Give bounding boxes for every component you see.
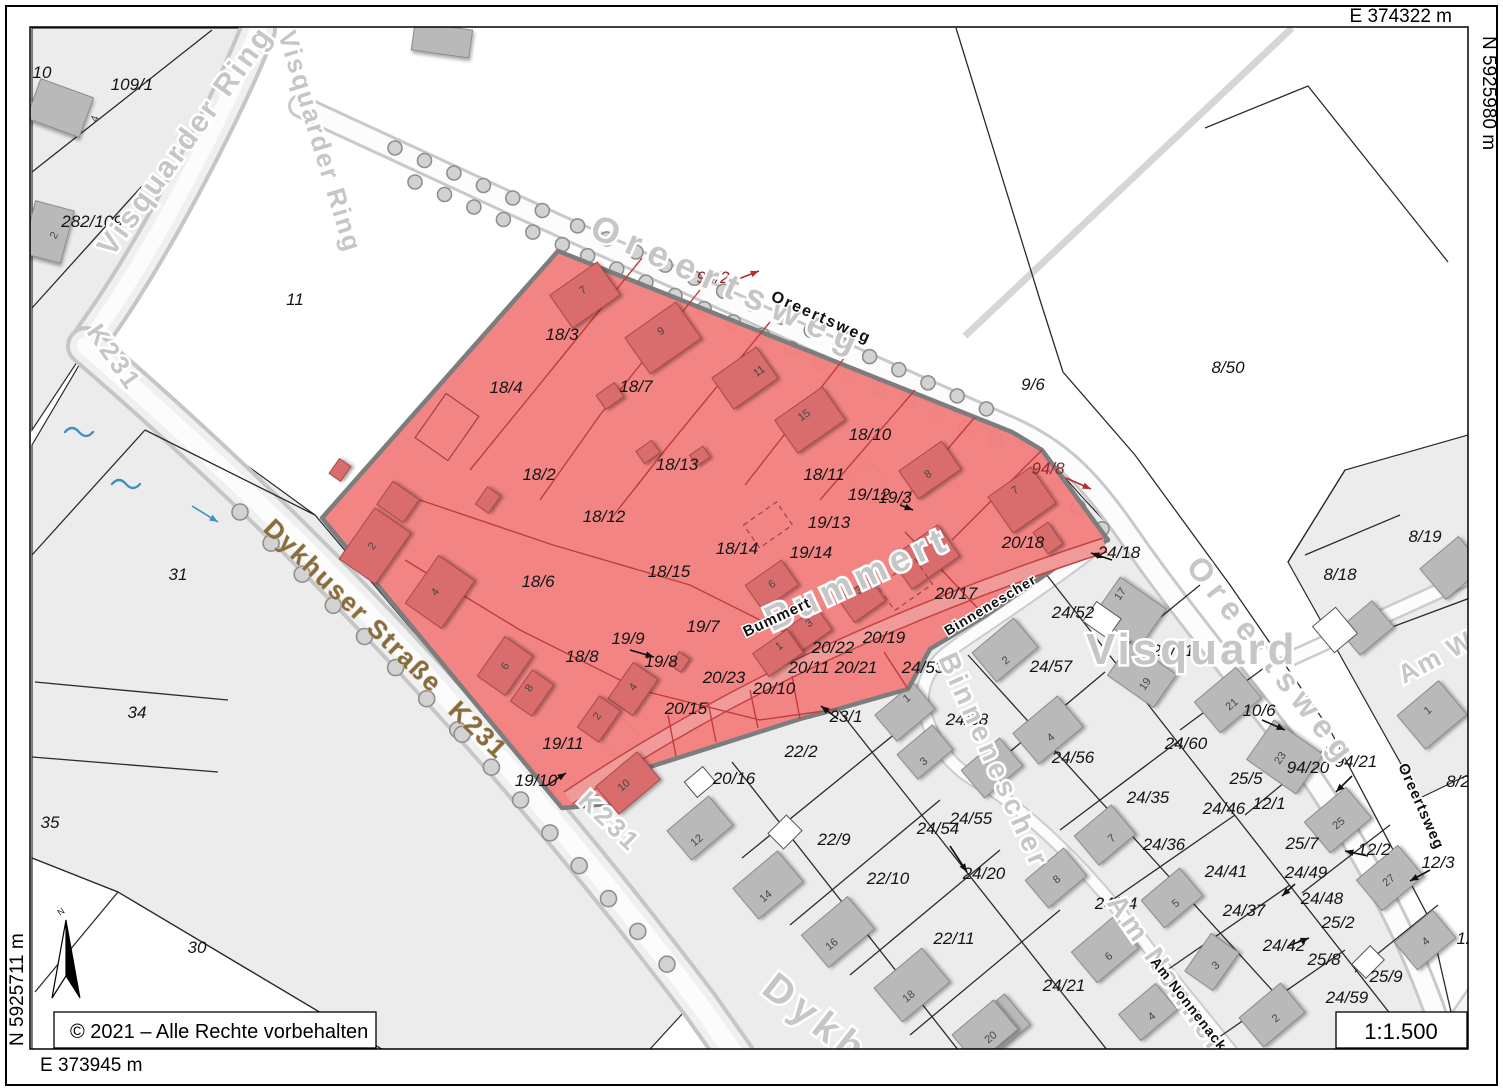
tree-icon xyxy=(921,376,935,390)
tree-icon xyxy=(476,179,490,193)
tree-icon xyxy=(979,402,993,416)
parcel-label: 24/35 xyxy=(1126,788,1170,807)
parcel-label: 35 xyxy=(41,813,60,832)
tree-icon xyxy=(542,825,558,841)
parcel-label: 18/6 xyxy=(521,572,555,591)
parcel-label: 20/18 xyxy=(1001,533,1045,552)
parcel-label: 24/20 xyxy=(962,864,1006,883)
parcel-label: 25/5 xyxy=(1228,769,1263,788)
tree-icon xyxy=(418,154,432,168)
parcel-label: 24/56 xyxy=(1051,748,1095,767)
parcel-label: 19/11 xyxy=(542,734,583,753)
parcel-label: 24/52 xyxy=(1051,603,1095,622)
parcel-label: 19/8 xyxy=(644,652,678,671)
parcel-label: 94/8 xyxy=(1031,459,1065,478)
tree-icon xyxy=(950,389,964,403)
parcel-label: 20/21 xyxy=(834,658,878,677)
parcel-label: 19/13 xyxy=(808,513,851,532)
coordinate-label-left: N 5925711 m xyxy=(7,933,28,1046)
tree-icon xyxy=(513,792,529,808)
tree-icon xyxy=(892,363,906,377)
parcel-label: 19/3 xyxy=(878,488,912,507)
tree-icon xyxy=(571,858,587,874)
parcel-label: 20/16 xyxy=(712,769,756,788)
tree-icon xyxy=(232,504,248,520)
parcel-label: 24/59 xyxy=(1325,988,1369,1007)
parcel-label: 12 xyxy=(1457,929,1476,948)
parcel-label: 24/55 xyxy=(949,809,993,828)
parcel-label: 24/37 xyxy=(1222,901,1266,920)
parcel-label: 18/8 xyxy=(565,647,599,666)
parcel-label: 22/10 xyxy=(866,869,910,888)
parcel-label: 25/9 xyxy=(1368,967,1403,986)
parcel-label: 24/21 xyxy=(1042,976,1086,995)
parcel-label: 20/17 xyxy=(934,584,978,603)
tree-icon xyxy=(447,166,461,180)
tree-icon xyxy=(438,188,452,202)
parcel-label: 18/4 xyxy=(489,378,522,397)
parcel-label: 19/14 xyxy=(790,543,833,562)
coordinate-label-bottom: E 373945 m xyxy=(40,1055,142,1076)
scale-box: 1:1.500 xyxy=(1336,1012,1467,1048)
parcel-label: 24/41 xyxy=(1204,862,1248,881)
tree-icon xyxy=(659,956,675,972)
parcel-label: 22/2 xyxy=(783,742,818,761)
parcel-label: 34 xyxy=(128,703,147,722)
parcel-label: 9/6 xyxy=(1021,375,1045,394)
parcel-label: 24/48 xyxy=(1300,889,1344,908)
parcel-label: 12/3 xyxy=(1421,853,1455,872)
parcel-label: 25/2 xyxy=(1320,913,1355,932)
parcel-label: 18/11 xyxy=(803,465,844,484)
parcel-label: 18/13 xyxy=(656,455,699,474)
parcel-label: 10/6 xyxy=(1242,701,1276,720)
tree-icon xyxy=(630,923,646,939)
parcel-label: 12/1 xyxy=(1252,794,1285,813)
parcel-label: 25/8 xyxy=(1306,950,1341,969)
place-label: Visquard xyxy=(1086,625,1297,674)
parcel-label: 20/23 xyxy=(702,668,746,687)
parcel-label: 24/60 xyxy=(1164,734,1208,753)
coordinate-label-right: N 5925980 m xyxy=(1478,36,1499,150)
copyright-text: © 2021 – Alle Rechte vorbehalten xyxy=(70,1021,368,1043)
tree-icon xyxy=(506,191,520,205)
parcel-label: 8/2 xyxy=(1446,772,1470,791)
parcel-label: 11 xyxy=(286,290,304,309)
parcel-label: 24/49 xyxy=(1284,863,1328,882)
tree-icon xyxy=(526,225,540,239)
parcel-label: 18/10 xyxy=(849,425,892,444)
scale-text: 1:1.500 xyxy=(1364,1019,1437,1044)
parcel-label: 20/15 xyxy=(664,699,708,718)
parcel-label: 12/2 xyxy=(1357,840,1391,859)
parcel-label: 31 xyxy=(169,565,188,584)
map-canvas: 10109/1282/10911313435308/509/68/198/188… xyxy=(0,0,1503,1091)
parcel-label: 24/57 xyxy=(1029,657,1073,676)
parcel-label: 20/11 xyxy=(787,658,829,677)
parcel-label: 8/50 xyxy=(1211,358,1245,377)
parcel-label: 20/10 xyxy=(752,679,796,698)
parcel-label: 22/11 xyxy=(932,929,974,948)
tree-icon xyxy=(863,350,877,364)
parcel-label: 18/2 xyxy=(522,465,556,484)
cadastral-map-viewport: 10109/1282/10911313435308/509/68/198/188… xyxy=(0,0,1503,1091)
tree-icon xyxy=(496,213,510,227)
tree-icon xyxy=(408,175,422,189)
copyright-box: © 2021 – Alle Rechte vorbehalten xyxy=(54,1012,376,1048)
tree-icon xyxy=(467,200,481,214)
parcel-label: 94/20 xyxy=(1287,758,1330,777)
tree-icon xyxy=(535,204,549,218)
parcel-label: 19/7 xyxy=(686,617,720,636)
parcel-label: 109/1 xyxy=(111,75,154,94)
parcel-label: 19/9 xyxy=(611,629,645,648)
parcel-label: 8/19 xyxy=(1408,527,1442,546)
coordinate-label-top-right: E 374322 m xyxy=(1350,6,1452,27)
parcel-label: 18/3 xyxy=(545,325,579,344)
parcel-label: 24/46 xyxy=(1202,799,1246,818)
parcel-label: 19/10 xyxy=(515,771,558,790)
parcel-label: 18/12 xyxy=(583,507,626,526)
parcel-label: 18/14 xyxy=(716,539,759,558)
parcel-label: 18/7 xyxy=(619,377,653,396)
parcel-label: 30 xyxy=(188,938,207,957)
parcel-label: 20/22 xyxy=(811,638,855,657)
parcel-label: 24/36 xyxy=(1142,835,1186,854)
parcel-label: 23/1 xyxy=(828,707,862,726)
tree-icon xyxy=(388,141,402,155)
parcel-label: 24/42 xyxy=(1262,936,1306,955)
parcel-label: 8/18 xyxy=(1323,565,1357,584)
parcel-label: 20/19 xyxy=(862,628,906,647)
parcel-label: 10 xyxy=(33,63,52,82)
tree-icon xyxy=(571,219,585,233)
parcel-label: 24/18 xyxy=(1097,543,1141,562)
parcel-label: 22/9 xyxy=(816,830,851,849)
parcel-label: 25/7 xyxy=(1284,834,1319,853)
parcel-label: 18/15 xyxy=(648,562,691,581)
tree-icon xyxy=(601,891,617,907)
